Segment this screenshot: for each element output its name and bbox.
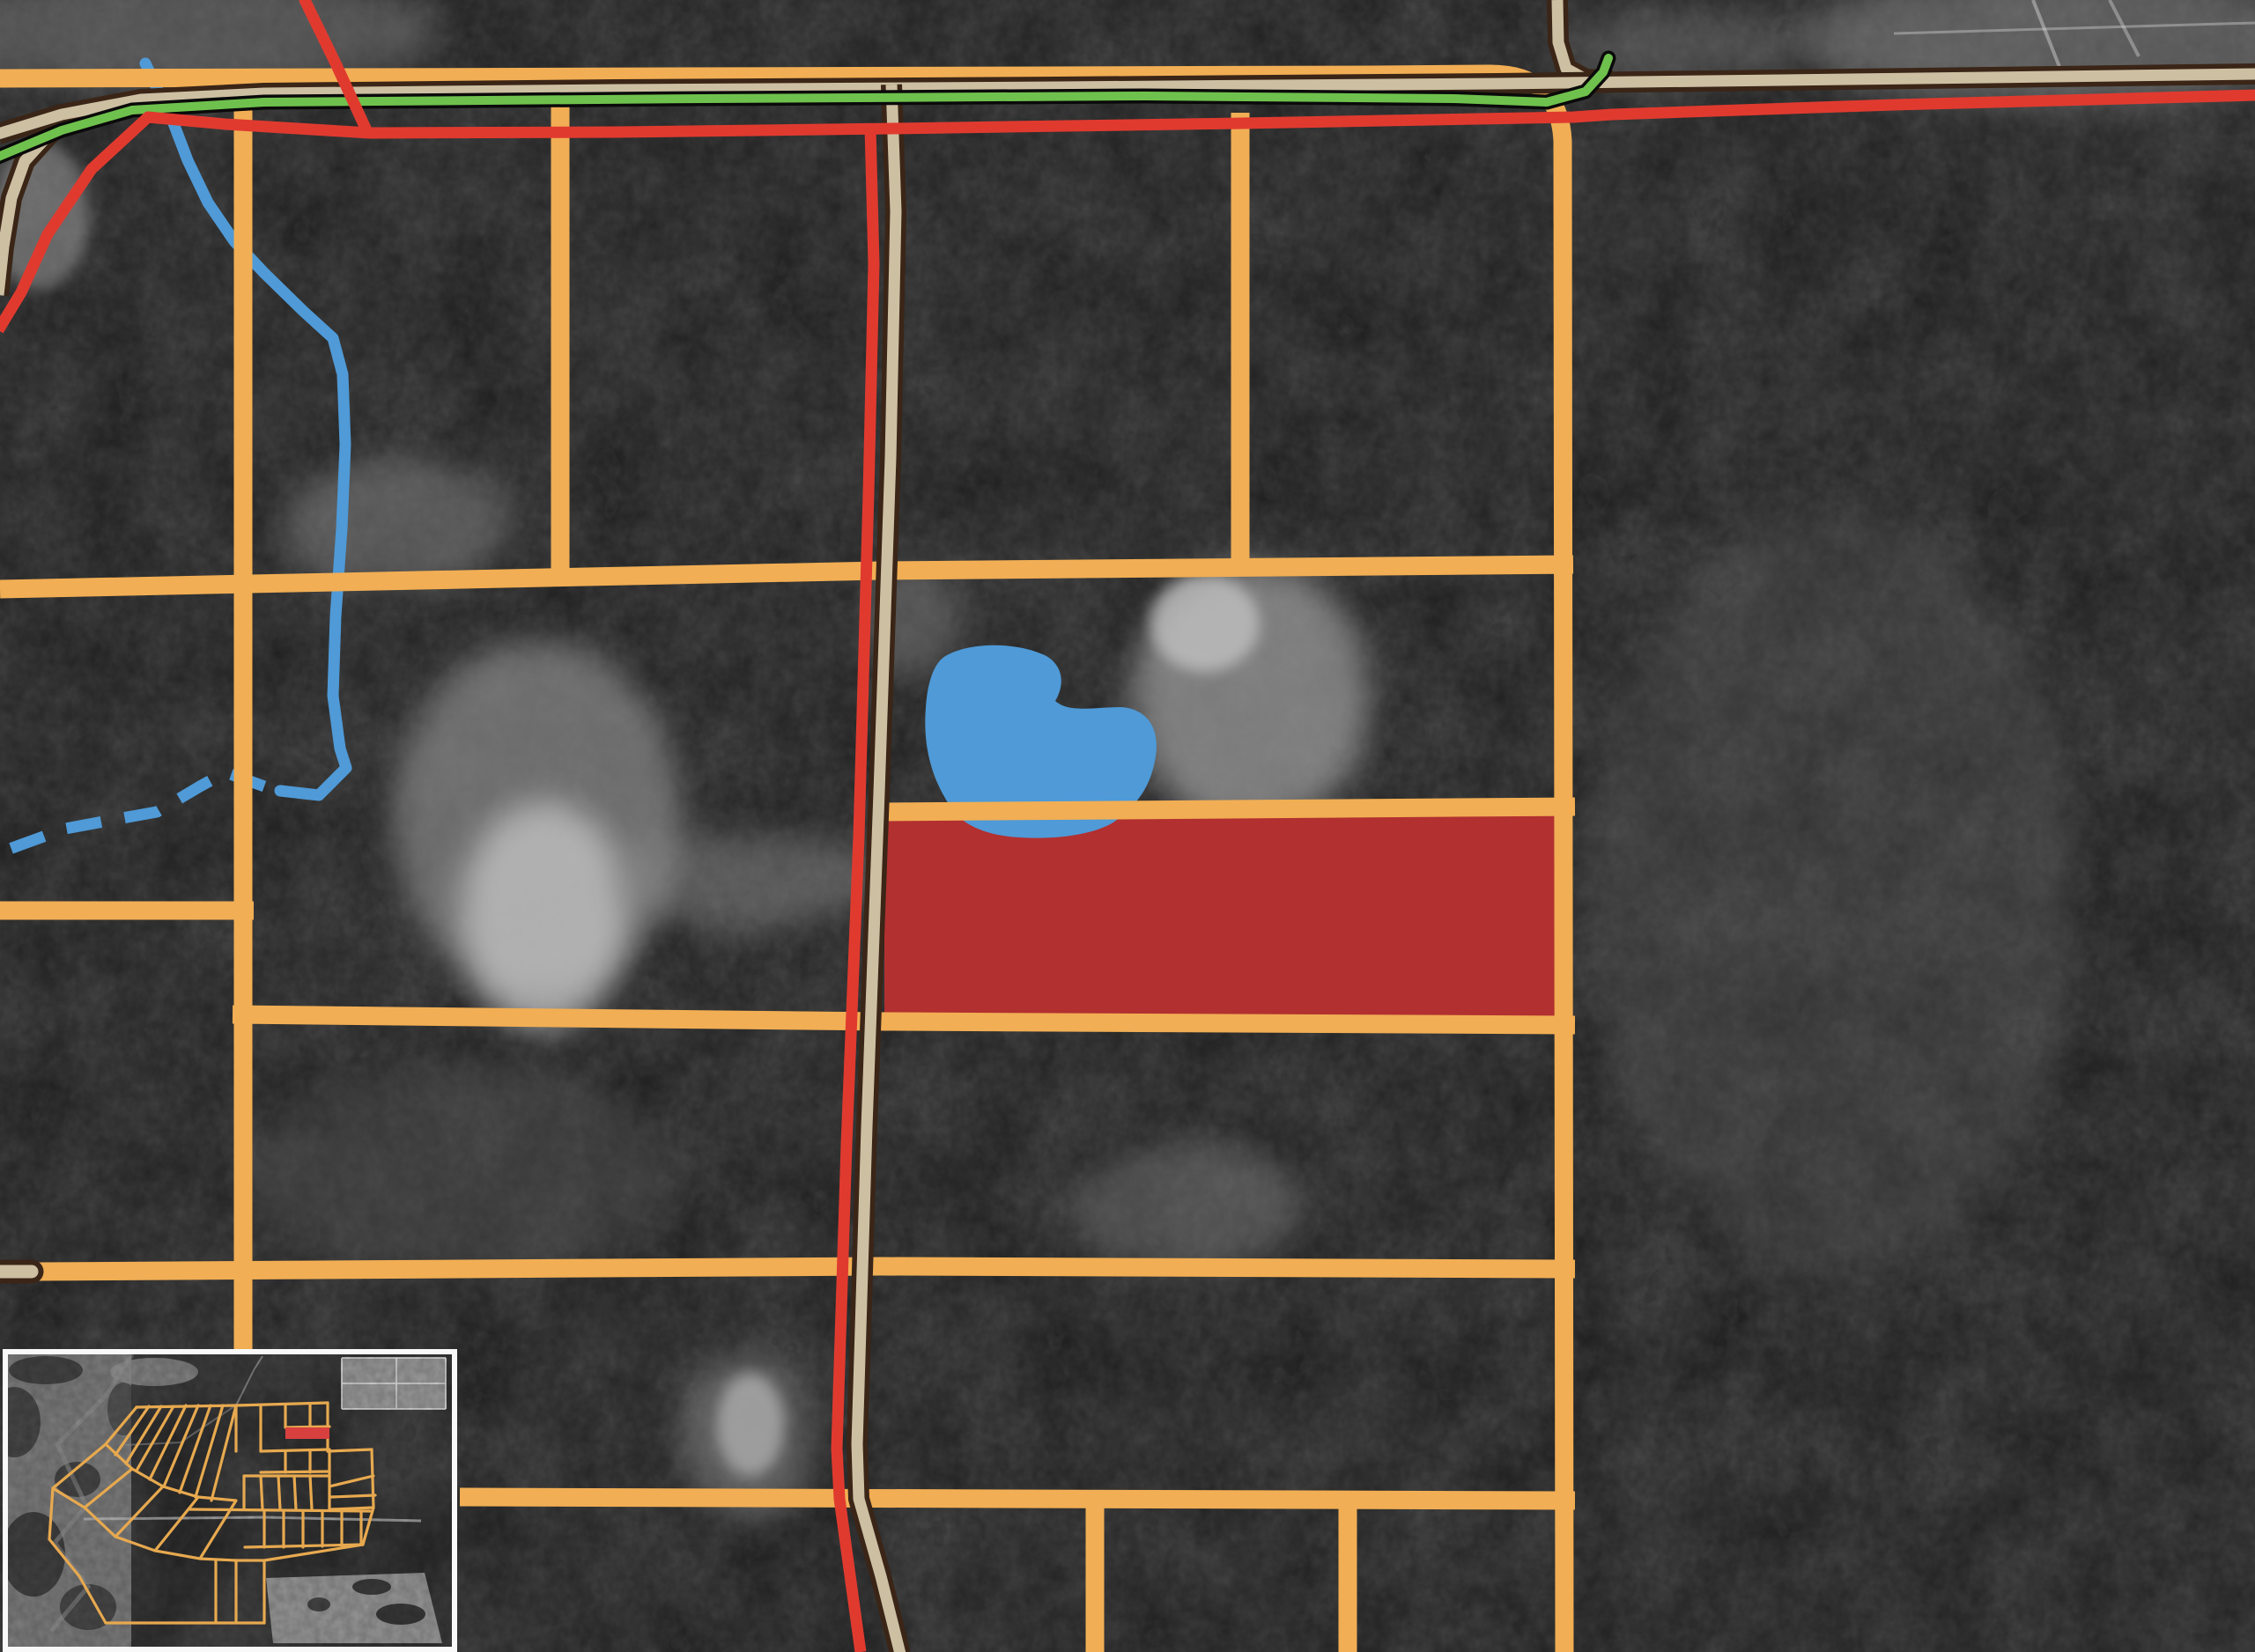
selected-parcel[interactable] <box>884 803 1561 1025</box>
highlighted-parcel[interactable] <box>884 803 1561 1025</box>
map-canvas[interactable] <box>0 0 2255 1652</box>
parcel-line-horizontal <box>460 1497 1575 1501</box>
well-pad-core <box>1150 575 1260 672</box>
inset-parcel-grid <box>372 1449 373 1508</box>
clearing-field-core <box>461 801 628 1030</box>
inset-parcel-grid <box>278 1476 280 1509</box>
inset-parcel-grid <box>294 1476 296 1509</box>
overview-inset-locator[interactable] <box>285 1427 329 1439</box>
clearing <box>612 832 876 929</box>
inset-parcel-grid <box>331 1508 373 1509</box>
inset-parcel-grid <box>261 1449 329 1451</box>
inset-parcel-grid <box>261 1471 329 1472</box>
inset-parcel-grid <box>285 1427 329 1427</box>
inset-parcel-grid <box>310 1476 312 1509</box>
parcel-line-parcel-top <box>884 807 1575 812</box>
clearing <box>1586 511 2079 1268</box>
parcel-line-parcel-bottom <box>233 1014 1575 1025</box>
clearing <box>247 1066 669 1277</box>
clearing <box>1075 1142 1304 1274</box>
map-viewport[interactable] <box>0 0 2255 1652</box>
inset-parcel-grid <box>328 1449 372 1451</box>
locator-rectangle[interactable] <box>285 1427 329 1439</box>
parcel-line-horizontal <box>39 1266 1575 1272</box>
inset-parcel-grid <box>331 1495 375 1497</box>
inset-parcel-grid <box>261 1476 262 1509</box>
